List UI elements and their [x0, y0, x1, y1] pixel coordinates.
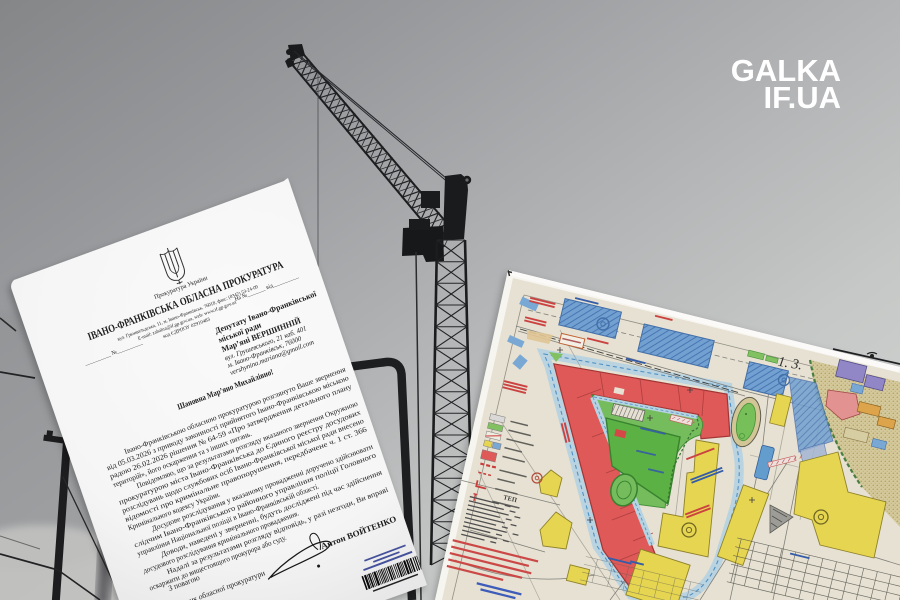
svg-text:IF.UA: IF.UA — [764, 80, 842, 115]
